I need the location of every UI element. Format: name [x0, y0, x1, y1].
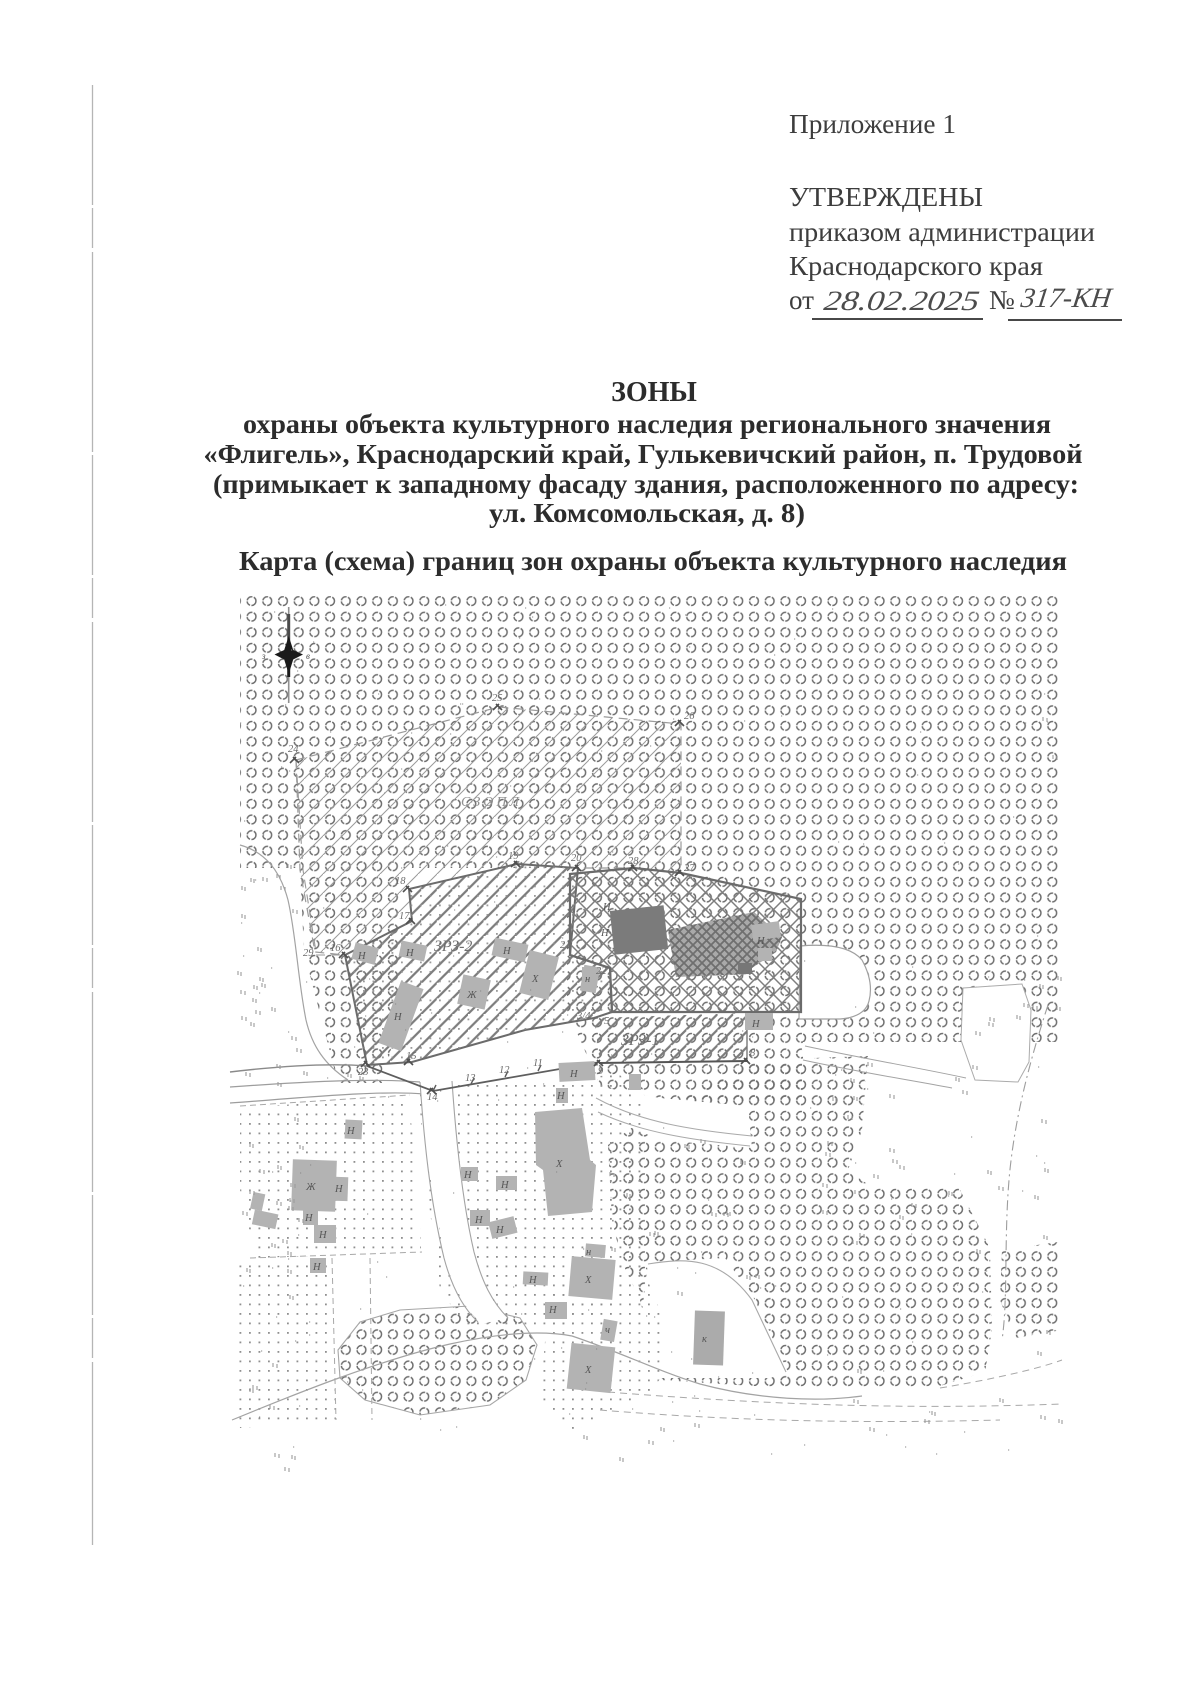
svg-text:14: 14: [427, 1092, 438, 1103]
svg-text:317-КН: 317-КН: [1018, 283, 1115, 314]
svg-text:Н: Н: [346, 1126, 356, 1137]
svg-text:3/4: 3/4: [576, 1011, 591, 1022]
svg-text:Приложение 1: Приложение 1: [789, 109, 956, 139]
svg-text:Н: Н: [495, 1225, 505, 1236]
svg-text:з: з: [261, 651, 266, 661]
svg-text:Н: Н: [312, 1262, 322, 1273]
svg-text:№: №: [989, 285, 1015, 315]
svg-text:Н: Н: [600, 928, 610, 939]
svg-text:8: 8: [750, 1048, 756, 1059]
svg-text:18: 18: [395, 876, 406, 887]
svg-text:Краснодарского края: Краснодарского края: [789, 251, 1043, 281]
svg-text:Н: Н: [569, 1069, 579, 1080]
svg-text:в: в: [306, 651, 310, 661]
svg-text:Н: Н: [357, 951, 367, 962]
svg-text:Н: Н: [500, 1180, 510, 1191]
svg-text:Н: Н: [756, 936, 766, 947]
svg-text:приказом администрации: приказом администрации: [789, 217, 1095, 247]
svg-text:Н: Н: [304, 1213, 314, 1224]
svg-text:«Флигель», Краснодарский край,: «Флигель», Краснодарский край, Гулькевич…: [204, 439, 1083, 469]
svg-text:Н: Н: [474, 1215, 484, 1226]
svg-text:Н: Н: [463, 1170, 473, 1181]
svg-text:к: к: [702, 1334, 707, 1345]
svg-text:охраны объекта культурного нас: охраны объекта культурного наследия реги…: [243, 409, 1051, 439]
svg-text:24: 24: [288, 744, 299, 755]
svg-text:ЗРЗ-1: ЗРЗ-1: [621, 1032, 659, 1049]
svg-text:ЗОНЫ: ЗОНЫ: [611, 377, 697, 408]
svg-text:ЗРЗ-2: ЗРЗ-2: [434, 938, 472, 955]
svg-text:Н: Н: [602, 902, 612, 913]
svg-text:н: н: [586, 1247, 591, 1258]
svg-text:от: от: [789, 285, 814, 315]
svg-text:25: 25: [492, 693, 503, 704]
svg-text:Х: Х: [584, 1275, 592, 1286]
svg-text:12: 12: [499, 1065, 510, 1076]
svg-text:Н: Н: [502, 946, 512, 957]
svg-text:Ж: Ж: [305, 1182, 316, 1193]
svg-text:9: 9: [598, 1066, 604, 1077]
svg-text:(примыкает к западному фасаду: (примыкает к западному фасаду здания, ра…: [213, 469, 1079, 499]
svg-text:21: 21: [560, 940, 571, 951]
svg-text:29: 29: [303, 948, 314, 959]
svg-text:Х: Х: [584, 1365, 592, 1376]
svg-text:11: 11: [533, 1058, 543, 1069]
svg-text:Н: Н: [548, 1305, 558, 1316]
svg-text:ч: ч: [605, 1325, 610, 1336]
svg-text:Н: Н: [393, 1012, 403, 1023]
svg-text:Н: Н: [751, 1019, 761, 1030]
svg-text:28.02.2025: 28.02.2025: [822, 286, 981, 317]
svg-text:Ж: Ж: [466, 990, 477, 1001]
svg-text:ул. Комсомольская, д. 8): ул. Комсомольская, д. 8): [489, 498, 805, 528]
svg-text:16: 16: [330, 943, 341, 954]
svg-text:Н: Н: [405, 948, 415, 959]
svg-text:Н: Н: [528, 1275, 538, 1286]
svg-text:27: 27: [684, 863, 695, 874]
svg-text:н: н: [585, 974, 590, 985]
svg-text:5: 5: [604, 1016, 609, 1027]
svg-text:19: 19: [508, 851, 519, 862]
svg-text:26: 26: [684, 711, 695, 722]
svg-text:Н: Н: [318, 1230, 328, 1241]
svg-text:13: 13: [465, 1073, 476, 1084]
svg-text:22: 22: [596, 966, 607, 977]
svg-text:УТВЕРЖДЕНЫ: УТВЕРЖДЕНЫ: [789, 182, 983, 212]
svg-text:Х: Х: [555, 1159, 563, 1170]
svg-text:Н: Н: [334, 1184, 344, 1195]
svg-text:Х: Х: [531, 974, 539, 985]
svg-text:СЗОПЛ: СЗОПЛ: [461, 795, 522, 810]
svg-text:Н: Н: [556, 1091, 566, 1102]
svg-text:20: 20: [571, 853, 582, 864]
svg-text:Карта (схема) границ зон охран: Карта (схема) границ зон охраны объекта …: [239, 546, 1067, 576]
